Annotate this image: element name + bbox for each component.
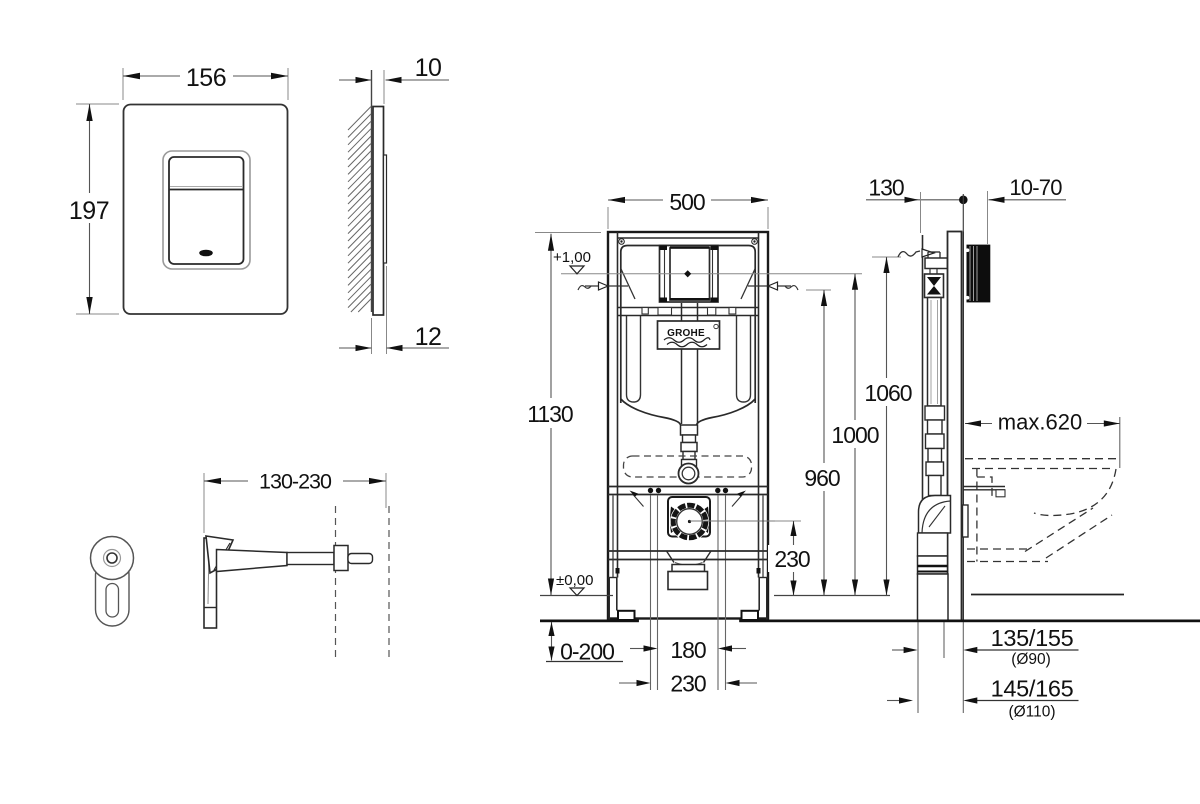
- svg-text:500: 500: [669, 189, 705, 215]
- svg-text:156: 156: [186, 64, 226, 92]
- svg-text:12: 12: [415, 323, 442, 351]
- svg-text:197: 197: [69, 197, 109, 225]
- svg-text:145/165: 145/165: [991, 676, 1074, 702]
- svg-text:230: 230: [670, 671, 706, 697]
- svg-text:+1,00: +1,00: [553, 249, 591, 266]
- svg-text:230: 230: [774, 546, 810, 572]
- svg-text:10: 10: [415, 54, 442, 82]
- svg-text:130-230: 130-230: [259, 470, 332, 494]
- svg-text:(Ø110): (Ø110): [1008, 704, 1055, 721]
- svg-text:10-70: 10-70: [1009, 175, 1062, 200]
- svg-text:135/155: 135/155: [991, 625, 1074, 651]
- svg-text:960: 960: [804, 465, 840, 491]
- svg-text:±0,00: ±0,00: [556, 572, 593, 589]
- svg-text:180: 180: [670, 637, 706, 663]
- svg-text:1060: 1060: [864, 380, 911, 406]
- svg-text:130: 130: [868, 175, 904, 201]
- svg-text:1130: 1130: [527, 401, 573, 427]
- svg-text:max.620: max.620: [998, 410, 1082, 435]
- svg-text:GROHE: GROHE: [667, 328, 705, 339]
- svg-text:0-200: 0-200: [560, 639, 614, 665]
- svg-text:1000: 1000: [831, 422, 878, 448]
- svg-text:(Ø90): (Ø90): [1011, 651, 1051, 668]
